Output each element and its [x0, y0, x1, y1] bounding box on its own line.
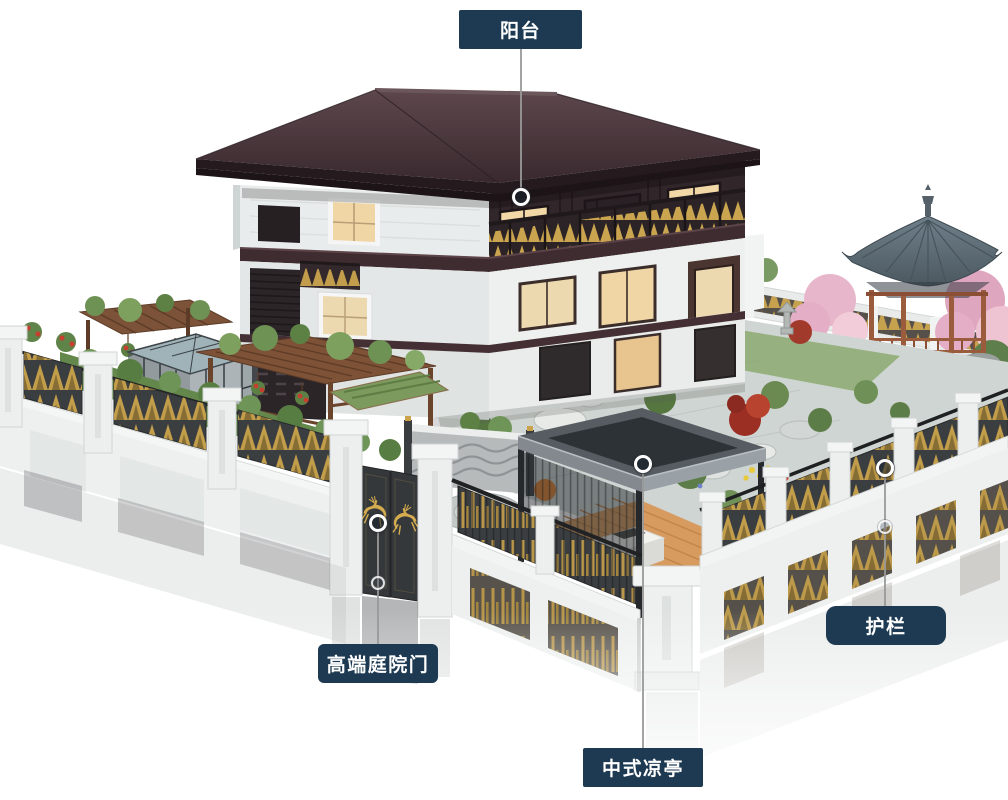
annotated-villa-figure: 阳台 高端庭院门 中式凉亭 护栏 — [0, 0, 1008, 800]
villa-scene-illustration — [0, 0, 1008, 800]
callout-label-chinese-pavilion[interactable]: 中式凉亭 — [583, 748, 703, 787]
callout-label-courtyard-gate[interactable]: 高端庭院门 — [318, 644, 438, 683]
callout-line-guardrail — [884, 477, 886, 606]
callout-text-chinese-pavilion: 中式凉亭 — [602, 754, 684, 781]
hotspot-gate[interactable] — [369, 514, 387, 532]
callout-text-guardrail: 护栏 — [865, 612, 906, 639]
callout-text-balcony: 阳台 — [500, 16, 541, 43]
callout-text-courtyard-gate: 高端庭院门 — [327, 650, 430, 677]
house — [196, 90, 764, 430]
callout-label-balcony[interactable]: 阳台 — [459, 10, 582, 49]
callout-line-pavilion — [642, 473, 644, 748]
hotspot-gate-reflection — [371, 576, 385, 590]
hotspot-guardrail[interactable] — [876, 459, 894, 477]
callout-label-guardrail[interactable]: 护栏 — [826, 606, 946, 645]
hotspot-balcony[interactable] — [512, 188, 530, 206]
hotspot-pavilion[interactable] — [634, 455, 652, 473]
hotspot-guardrail-secondary — [878, 520, 892, 534]
callout-line-balcony — [520, 49, 522, 188]
